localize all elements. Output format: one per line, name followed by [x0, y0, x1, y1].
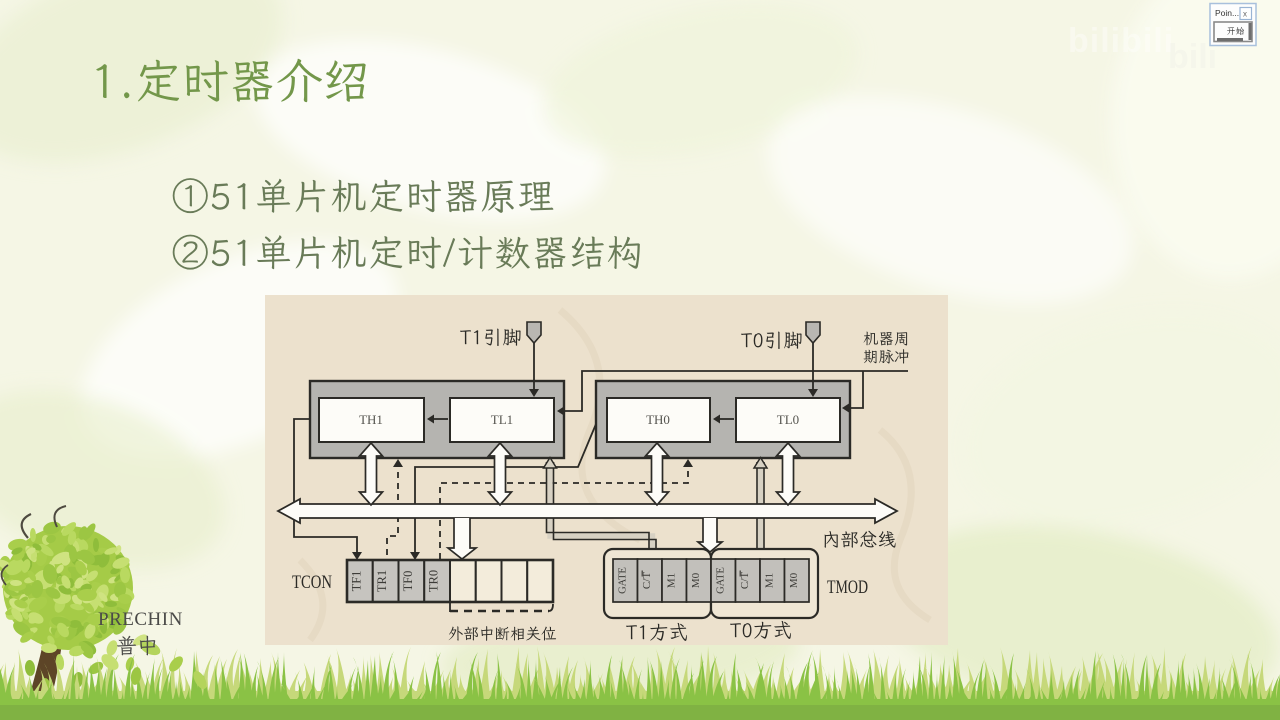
svg-text:Poin...: Poin...	[1215, 8, 1239, 18]
svg-text:M0: M0	[788, 572, 800, 588]
svg-text:GATE: GATE	[618, 567, 629, 594]
svg-text:C/T: C/T	[739, 572, 751, 589]
svg-text:TR1: TR1	[375, 570, 389, 592]
svg-text:GATE: GATE	[716, 567, 727, 594]
svg-text:TCON: TCON	[292, 572, 332, 593]
svg-text:TH0: TH0	[646, 412, 670, 427]
svg-text:TL0: TL0	[777, 412, 799, 427]
svg-text:TH1: TH1	[359, 412, 383, 427]
svg-text:PRECHIN: PRECHIN	[98, 609, 183, 630]
svg-text:TR0: TR0	[427, 570, 441, 592]
svg-text:TL1: TL1	[491, 412, 513, 427]
svg-text:TF0: TF0	[401, 571, 415, 592]
svg-text:TF1: TF1	[349, 571, 363, 592]
svg-text:M0: M0	[690, 572, 702, 588]
svg-text:M1: M1	[666, 573, 678, 588]
svg-text:bilibili: bilibili	[1068, 22, 1174, 60]
svg-text:TMOD: TMOD	[827, 577, 868, 598]
svg-text:C/T: C/T	[641, 572, 653, 589]
svg-text:M1: M1	[764, 573, 776, 588]
svg-text:x: x	[1243, 10, 1247, 19]
